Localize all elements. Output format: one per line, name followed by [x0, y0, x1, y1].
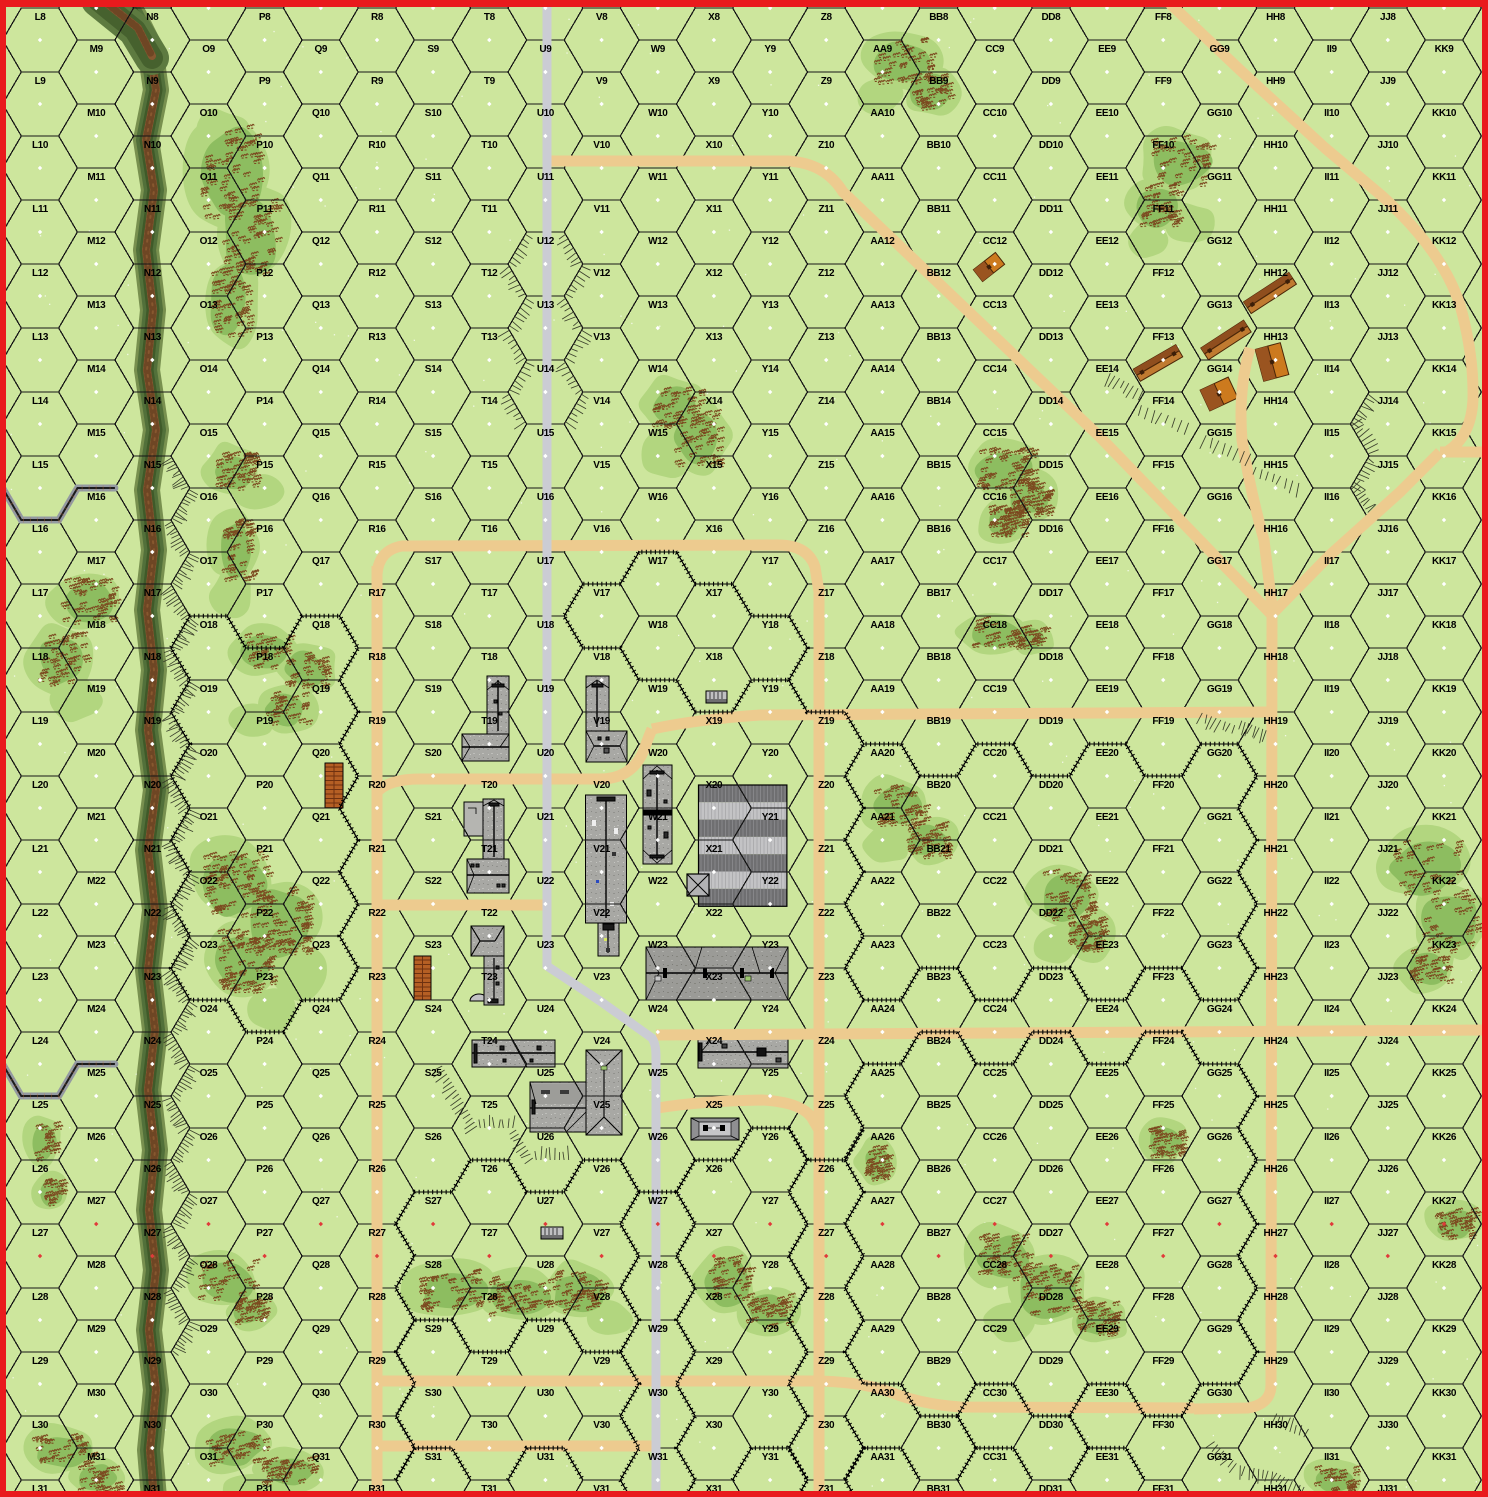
svg-text:Z16: Z16 [818, 524, 835, 535]
svg-text:T20: T20 [481, 780, 498, 791]
svg-text:HH30: HH30 [1264, 1420, 1289, 1431]
svg-text:W13: W13 [648, 300, 668, 311]
svg-text:II26: II26 [1324, 1132, 1340, 1143]
svg-text:N16: N16 [144, 524, 162, 535]
svg-text:V30: V30 [593, 1420, 610, 1431]
svg-text:V28: V28 [593, 1292, 610, 1303]
svg-text:M9: M9 [90, 44, 104, 55]
svg-text:HH26: HH26 [1264, 1164, 1289, 1175]
svg-text:S12: S12 [425, 236, 442, 247]
svg-text:S22: S22 [425, 876, 442, 887]
svg-text:U16: U16 [537, 492, 555, 503]
svg-text:Q15: Q15 [312, 428, 331, 439]
svg-text:M17: M17 [87, 556, 106, 567]
svg-text:Z25: Z25 [818, 1100, 835, 1111]
svg-text:S9: S9 [427, 44, 439, 55]
svg-text:Z13: Z13 [818, 332, 835, 343]
svg-text:HH29: HH29 [1264, 1356, 1289, 1367]
svg-text:BB27: BB27 [927, 1228, 952, 1239]
svg-text:BB26: BB26 [927, 1164, 952, 1175]
svg-text:R13: R13 [368, 332, 386, 343]
svg-text:Q19: Q19 [312, 684, 331, 695]
svg-text:CC16: CC16 [983, 492, 1008, 503]
svg-text:CC15: CC15 [983, 428, 1008, 439]
svg-text:FF24: FF24 [1152, 1036, 1175, 1047]
svg-text:L11: L11 [32, 204, 48, 215]
svg-text:EE21: EE21 [1096, 812, 1120, 823]
svg-text:CC18: CC18 [983, 620, 1008, 631]
svg-text:P17: P17 [256, 588, 273, 599]
svg-text:Q18: Q18 [312, 620, 331, 631]
svg-text:JJ12: JJ12 [1377, 268, 1398, 279]
svg-text:S18: S18 [425, 620, 442, 631]
svg-text:O23: O23 [200, 940, 219, 951]
svg-text:EE13: EE13 [1096, 300, 1120, 311]
svg-text:N22: N22 [144, 908, 162, 919]
svg-text:II12: II12 [1324, 236, 1340, 247]
svg-text:JJ16: JJ16 [1377, 524, 1398, 535]
svg-text:P13: P13 [256, 332, 273, 343]
svg-text:Y11: Y11 [762, 172, 779, 183]
svg-text:T16: T16 [481, 524, 498, 535]
svg-text:KK13: KK13 [1432, 300, 1457, 311]
svg-text:L22: L22 [32, 908, 49, 919]
svg-text:AA23: AA23 [870, 940, 895, 951]
svg-text:AA21: AA21 [870, 812, 895, 823]
svg-text:DD25: DD25 [1039, 1100, 1064, 1111]
svg-text:JJ13: JJ13 [1377, 332, 1398, 343]
svg-text:II28: II28 [1324, 1260, 1340, 1271]
svg-text:N18: N18 [144, 652, 162, 663]
svg-text:P16: P16 [256, 524, 273, 535]
svg-text:BB17: BB17 [927, 588, 952, 599]
svg-text:N19: N19 [144, 716, 162, 727]
svg-text:Y21: Y21 [762, 812, 779, 823]
svg-text:AA26: AA26 [870, 1132, 895, 1143]
svg-text:Q30: Q30 [312, 1388, 331, 1399]
svg-text:M11: M11 [87, 172, 106, 183]
svg-text:CC22: CC22 [983, 876, 1008, 887]
svg-text:Q29: Q29 [312, 1324, 331, 1335]
svg-text:Y26: Y26 [762, 1132, 779, 1143]
svg-text:BB18: BB18 [927, 652, 952, 663]
svg-text:EE16: EE16 [1096, 492, 1120, 503]
svg-text:Y27: Y27 [762, 1196, 779, 1207]
svg-text:Z22: Z22 [818, 908, 835, 919]
svg-text:Z10: Z10 [818, 140, 835, 151]
svg-text:U12: U12 [537, 236, 555, 247]
svg-text:FF13: FF13 [1152, 332, 1175, 343]
svg-text:O12: O12 [200, 236, 219, 247]
svg-text:BB8: BB8 [929, 12, 949, 23]
svg-text:CC26: CC26 [983, 1132, 1008, 1143]
svg-text:HH15: HH15 [1264, 460, 1289, 471]
svg-text:P10: P10 [256, 140, 273, 151]
svg-text:P26: P26 [256, 1164, 273, 1175]
svg-text:S25: S25 [425, 1068, 442, 1079]
svg-text:L19: L19 [32, 716, 49, 727]
svg-text:II18: II18 [1324, 620, 1340, 631]
svg-text:T22: T22 [481, 908, 498, 919]
svg-text:P14: P14 [256, 396, 273, 407]
svg-text:BB30: BB30 [927, 1420, 952, 1431]
svg-text:GG18: GG18 [1207, 620, 1233, 631]
svg-text:HH19: HH19 [1264, 716, 1289, 727]
svg-text:BB12: BB12 [927, 268, 952, 279]
svg-text:EE17: EE17 [1096, 556, 1120, 567]
svg-text:BB13: BB13 [927, 332, 952, 343]
svg-text:L10: L10 [32, 140, 49, 151]
svg-text:O11: O11 [200, 172, 218, 183]
svg-text:FF30: FF30 [1152, 1420, 1175, 1431]
svg-text:O25: O25 [200, 1068, 219, 1079]
svg-text:II27: II27 [1324, 1196, 1340, 1207]
svg-text:HH27: HH27 [1264, 1228, 1289, 1239]
svg-text:V15: V15 [593, 460, 610, 471]
svg-text:EE24: EE24 [1096, 1004, 1120, 1015]
svg-text:V27: V27 [593, 1228, 610, 1239]
svg-text:DD21: DD21 [1039, 844, 1064, 855]
svg-text:U23: U23 [537, 940, 555, 951]
svg-text:O29: O29 [200, 1324, 219, 1335]
svg-text:O31: O31 [200, 1452, 219, 1463]
svg-text:V13: V13 [593, 332, 610, 343]
svg-text:M15: M15 [87, 428, 106, 439]
svg-text:EE20: EE20 [1096, 748, 1120, 759]
svg-text:JJ11: JJ11 [1378, 204, 1399, 215]
svg-text:N8: N8 [146, 12, 159, 23]
svg-text:FF26: FF26 [1152, 1164, 1175, 1175]
svg-text:V18: V18 [593, 652, 610, 663]
svg-text:AA17: AA17 [870, 556, 895, 567]
svg-text:BB9: BB9 [929, 76, 949, 87]
svg-text:Q23: Q23 [312, 940, 331, 951]
svg-text:R26: R26 [368, 1164, 386, 1175]
svg-text:X18: X18 [706, 652, 723, 663]
svg-text:S17: S17 [425, 556, 442, 567]
svg-text:AA31: AA31 [870, 1452, 895, 1463]
svg-text:CC23: CC23 [983, 940, 1008, 951]
svg-text:GG21: GG21 [1207, 812, 1233, 823]
svg-text:X16: X16 [706, 524, 723, 535]
svg-text:V11: V11 [594, 204, 611, 215]
svg-text:V9: V9 [596, 76, 608, 87]
svg-text:JJ29: JJ29 [1377, 1356, 1398, 1367]
svg-text:GG14: GG14 [1207, 364, 1233, 375]
svg-text:L30: L30 [32, 1420, 49, 1431]
svg-text:N15: N15 [144, 460, 162, 471]
svg-text:M10: M10 [87, 108, 106, 119]
svg-text:Z8: Z8 [821, 12, 833, 23]
svg-text:X10: X10 [706, 140, 723, 151]
svg-text:DD13: DD13 [1039, 332, 1064, 343]
svg-text:P25: P25 [256, 1100, 273, 1111]
svg-text:T18: T18 [481, 652, 498, 663]
svg-text:AA27: AA27 [870, 1196, 895, 1207]
svg-text:AA9: AA9 [873, 44, 893, 55]
svg-text:Y12: Y12 [762, 236, 779, 247]
svg-text:W30: W30 [648, 1388, 668, 1399]
svg-text:V23: V23 [593, 972, 610, 983]
svg-text:U31: U31 [537, 1452, 555, 1463]
svg-text:KK23: KK23 [1432, 940, 1457, 951]
svg-text:O27: O27 [200, 1196, 219, 1207]
svg-text:FF20: FF20 [1152, 780, 1175, 791]
svg-text:GG28: GG28 [1207, 1260, 1233, 1271]
svg-text:JJ10: JJ10 [1377, 140, 1398, 151]
svg-text:Q13: Q13 [312, 300, 331, 311]
svg-text:N12: N12 [144, 268, 162, 279]
svg-text:T28: T28 [481, 1292, 498, 1303]
svg-text:U24: U24 [537, 1004, 555, 1015]
svg-text:U15: U15 [537, 428, 555, 439]
svg-text:EE27: EE27 [1096, 1196, 1120, 1207]
svg-text:S26: S26 [425, 1132, 442, 1143]
svg-text:AA10: AA10 [870, 108, 895, 119]
svg-text:KK20: KK20 [1432, 748, 1457, 759]
svg-text:L21: L21 [32, 844, 49, 855]
svg-text:GG13: GG13 [1207, 300, 1233, 311]
svg-text:M31: M31 [87, 1452, 106, 1463]
svg-text:HH20: HH20 [1264, 780, 1289, 791]
svg-text:M21: M21 [87, 812, 106, 823]
svg-text:T23: T23 [481, 972, 498, 983]
svg-text:II20: II20 [1324, 748, 1340, 759]
svg-text:X14: X14 [706, 396, 723, 407]
svg-text:GG23: GG23 [1207, 940, 1233, 951]
svg-text:FF23: FF23 [1152, 972, 1175, 983]
svg-text:O28: O28 [200, 1260, 219, 1271]
svg-text:T14: T14 [481, 396, 498, 407]
svg-text:Q22: Q22 [312, 876, 331, 887]
svg-text:W16: W16 [648, 492, 668, 503]
svg-text:P20: P20 [256, 780, 273, 791]
svg-text:R11: R11 [369, 204, 386, 215]
svg-text:EE23: EE23 [1096, 940, 1120, 951]
svg-text:L25: L25 [32, 1100, 49, 1111]
svg-text:V24: V24 [593, 1036, 610, 1047]
svg-text:M26: M26 [87, 1132, 106, 1143]
svg-text:N14: N14 [144, 396, 162, 407]
svg-text:U29: U29 [537, 1324, 555, 1335]
svg-text:II14: II14 [1324, 364, 1340, 375]
svg-text:HH28: HH28 [1264, 1292, 1289, 1303]
svg-text:U9: U9 [539, 44, 552, 55]
svg-text:N11: N11 [144, 204, 161, 215]
svg-text:T21: T21 [481, 844, 498, 855]
svg-text:Z29: Z29 [818, 1356, 835, 1367]
svg-text:Y15: Y15 [762, 428, 779, 439]
svg-text:V14: V14 [593, 396, 610, 407]
svg-text:M23: M23 [87, 940, 106, 951]
svg-text:L24: L24 [32, 1036, 49, 1047]
svg-text:X15: X15 [706, 460, 723, 471]
svg-text:EE30: EE30 [1096, 1388, 1120, 1399]
svg-text:EE28: EE28 [1096, 1260, 1120, 1271]
svg-text:DD23: DD23 [1039, 972, 1064, 983]
svg-text:W12: W12 [648, 236, 668, 247]
svg-text:R18: R18 [368, 652, 386, 663]
svg-text:S24: S24 [425, 1004, 442, 1015]
svg-text:S30: S30 [425, 1388, 442, 1399]
svg-text:X8: X8 [708, 12, 720, 23]
svg-text:R22: R22 [368, 908, 386, 919]
svg-text:FF8: FF8 [1155, 12, 1172, 23]
svg-text:X25: X25 [706, 1100, 723, 1111]
svg-text:R27: R27 [368, 1228, 386, 1239]
svg-text:U10: U10 [537, 108, 555, 119]
svg-text:KK18: KK18 [1432, 620, 1457, 631]
svg-text:X20: X20 [706, 780, 723, 791]
svg-text:U27: U27 [537, 1196, 555, 1207]
svg-text:W20: W20 [648, 748, 668, 759]
svg-text:AA13: AA13 [870, 300, 895, 311]
svg-text:U13: U13 [537, 300, 555, 311]
svg-text:U30: U30 [537, 1388, 555, 1399]
svg-text:U20: U20 [537, 748, 555, 759]
svg-text:R19: R19 [368, 716, 386, 727]
svg-text:II11: II11 [1324, 172, 1339, 183]
svg-text:DD27: DD27 [1039, 1228, 1064, 1239]
svg-text:BB11: BB11 [927, 204, 951, 215]
svg-text:X29: X29 [706, 1356, 723, 1367]
svg-text:JJ17: JJ17 [1377, 588, 1398, 599]
svg-text:II9: II9 [1327, 44, 1338, 55]
svg-text:Q10: Q10 [312, 108, 331, 119]
svg-text:R28: R28 [368, 1292, 386, 1303]
svg-text:GG10: GG10 [1207, 108, 1233, 119]
svg-text:Y14: Y14 [762, 364, 779, 375]
svg-text:M14: M14 [87, 364, 106, 375]
svg-text:U11: U11 [537, 172, 554, 183]
svg-text:AA18: AA18 [870, 620, 895, 631]
svg-text:HH22: HH22 [1264, 908, 1289, 919]
svg-text:EE26: EE26 [1096, 1132, 1120, 1143]
svg-text:CC10: CC10 [983, 108, 1008, 119]
svg-text:O26: O26 [200, 1132, 219, 1143]
svg-text:S16: S16 [425, 492, 442, 503]
svg-text:W14: W14 [648, 364, 668, 375]
svg-text:DD29: DD29 [1039, 1356, 1064, 1367]
svg-text:S11: S11 [425, 172, 442, 183]
svg-text:L12: L12 [32, 268, 49, 279]
svg-text:O15: O15 [200, 428, 219, 439]
svg-text:FF19: FF19 [1152, 716, 1175, 727]
svg-text:JJ15: JJ15 [1377, 460, 1398, 471]
svg-text:M19: M19 [87, 684, 106, 695]
svg-text:Z27: Z27 [818, 1228, 835, 1239]
svg-text:HH18: HH18 [1264, 652, 1289, 663]
svg-text:R23: R23 [368, 972, 386, 983]
svg-text:S29: S29 [425, 1324, 442, 1335]
svg-text:W22: W22 [648, 876, 668, 887]
svg-text:Y16: Y16 [762, 492, 779, 503]
svg-text:KK19: KK19 [1432, 684, 1457, 695]
svg-text:GG9: GG9 [1209, 44, 1230, 55]
svg-text:O22: O22 [200, 876, 219, 887]
svg-text:V29: V29 [593, 1356, 610, 1367]
svg-text:X19: X19 [706, 716, 723, 727]
svg-text:GG19: GG19 [1207, 684, 1233, 695]
svg-text:FF16: FF16 [1152, 524, 1175, 535]
svg-text:P11: P11 [257, 204, 274, 215]
svg-text:EE12: EE12 [1096, 236, 1120, 247]
svg-text:Y31: Y31 [762, 1452, 779, 1463]
svg-text:KK29: KK29 [1432, 1324, 1457, 1335]
svg-text:KK24: KK24 [1432, 1004, 1457, 1015]
svg-text:V17: V17 [593, 588, 610, 599]
svg-text:N24: N24 [144, 1036, 162, 1047]
svg-text:DD26: DD26 [1039, 1164, 1064, 1175]
svg-text:P9: P9 [259, 76, 271, 87]
svg-text:HH14: HH14 [1264, 396, 1289, 407]
svg-text:P19: P19 [256, 716, 273, 727]
svg-text:BB28: BB28 [927, 1292, 952, 1303]
svg-text:FF29: FF29 [1152, 1356, 1175, 1367]
svg-text:HH16: HH16 [1264, 524, 1289, 535]
svg-text:JJ24: JJ24 [1377, 1036, 1398, 1047]
svg-text:II30: II30 [1324, 1388, 1340, 1399]
svg-text:Y29: Y29 [762, 1324, 779, 1335]
svg-text:CC25: CC25 [983, 1068, 1008, 1079]
svg-text:JJ19: JJ19 [1377, 716, 1398, 727]
svg-text:X30: X30 [706, 1420, 723, 1431]
svg-text:HH24: HH24 [1264, 1036, 1289, 1047]
svg-text:AA11: AA11 [871, 172, 895, 183]
svg-text:O10: O10 [200, 108, 219, 119]
svg-text:Z15: Z15 [818, 460, 835, 471]
svg-text:CC24: CC24 [983, 1004, 1008, 1015]
svg-text:R25: R25 [368, 1100, 386, 1111]
svg-text:Z30: Z30 [818, 1420, 835, 1431]
svg-text:HH21: HH21 [1264, 844, 1289, 855]
svg-text:Q27: Q27 [312, 1196, 331, 1207]
svg-text:BB20: BB20 [927, 780, 952, 791]
svg-text:U26: U26 [537, 1132, 555, 1143]
svg-text:T19: T19 [481, 716, 498, 727]
svg-text:GG12: GG12 [1207, 236, 1233, 247]
svg-text:Z14: Z14 [818, 396, 835, 407]
svg-text:Q26: Q26 [312, 1132, 331, 1143]
svg-text:R29: R29 [368, 1356, 386, 1367]
svg-text:Y9: Y9 [764, 44, 776, 55]
svg-text:Y13: Y13 [762, 300, 779, 311]
svg-text:GG25: GG25 [1207, 1068, 1233, 1079]
svg-text:O24: O24 [200, 1004, 219, 1015]
svg-text:L16: L16 [32, 524, 49, 535]
svg-text:L9: L9 [35, 76, 47, 87]
svg-text:Z18: Z18 [818, 652, 835, 663]
svg-text:CC13: CC13 [983, 300, 1008, 311]
svg-text:KK25: KK25 [1432, 1068, 1457, 1079]
svg-text:II31: II31 [1324, 1452, 1340, 1463]
svg-text:BB19: BB19 [927, 716, 952, 727]
svg-text:T9: T9 [484, 76, 496, 87]
svg-text:KK11: KK11 [1432, 172, 1456, 183]
svg-text:II16: II16 [1324, 492, 1340, 503]
svg-text:KK21: KK21 [1432, 812, 1457, 823]
svg-text:W18: W18 [648, 620, 668, 631]
svg-text:N28: N28 [144, 1292, 162, 1303]
svg-text:DD30: DD30 [1039, 1420, 1064, 1431]
svg-text:JJ9: JJ9 [1380, 76, 1396, 87]
svg-text:GG26: GG26 [1207, 1132, 1233, 1143]
svg-text:Q31: Q31 [312, 1452, 331, 1463]
svg-text:W27: W27 [648, 1196, 668, 1207]
svg-text:S31: S31 [425, 1452, 442, 1463]
svg-text:W21: W21 [648, 812, 668, 823]
svg-text:N25: N25 [144, 1100, 162, 1111]
